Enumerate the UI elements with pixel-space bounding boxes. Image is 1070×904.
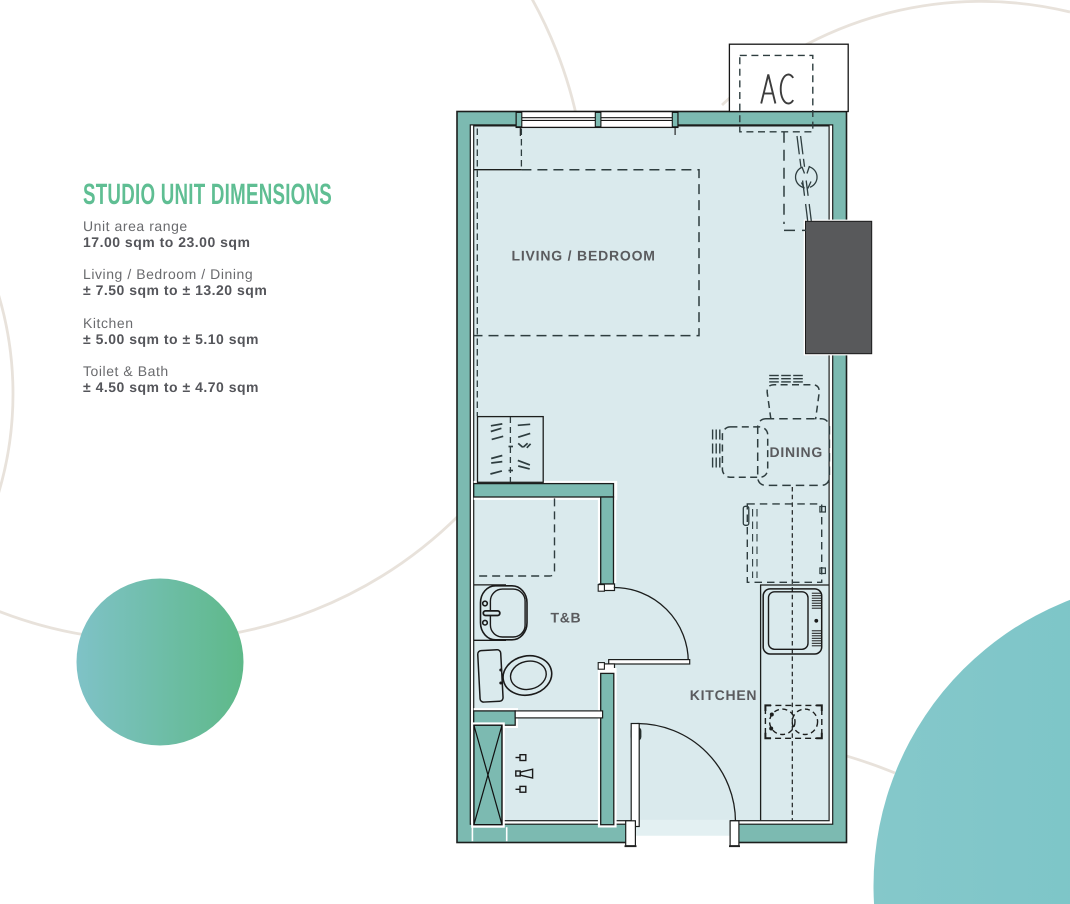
svg-text:DINING: DINING <box>770 444 824 460</box>
svg-text:LIVING / BEDROOM: LIVING / BEDROOM <box>512 248 656 264</box>
svg-text:KITCHEN: KITCHEN <box>690 687 757 703</box>
svg-text:T&B: T&B <box>551 610 582 626</box>
